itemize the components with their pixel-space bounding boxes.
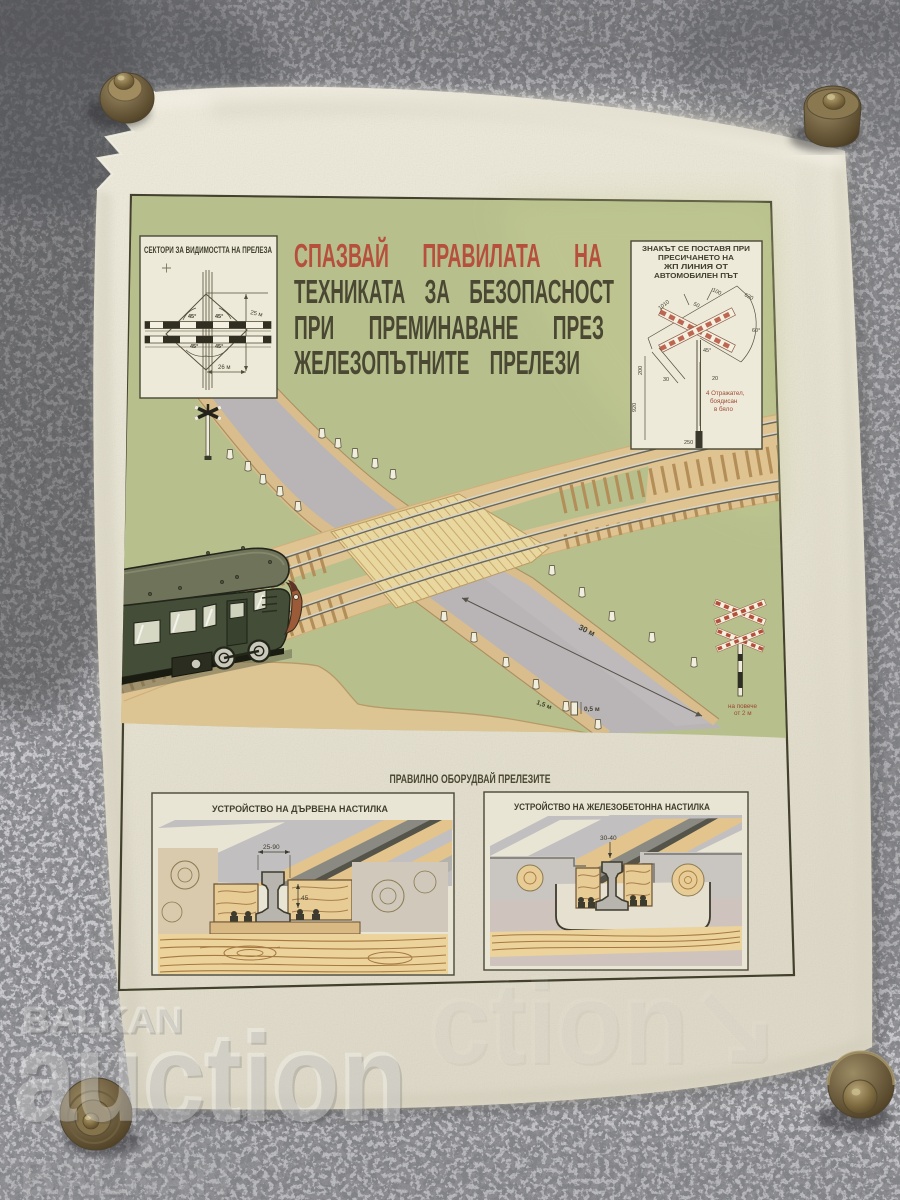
svg-text:auction: auction	[14, 1008, 406, 1147]
svg-text:ТЕХНИКАТА ЗА БЕЗОПАСНОСТ: ТЕХНИКАТА ЗА БЕЗОПАСНОСТ	[294, 273, 614, 310]
svg-text:200: 200	[638, 366, 644, 375]
svg-text:250: 250	[684, 440, 693, 446]
svg-text:45°: 45°	[215, 314, 223, 320]
svg-text:ction↘: ction↘	[428, 956, 778, 1088]
svg-text:BALKAN: BALKAN	[20, 1149, 230, 1200]
svg-text:ПРАВИЛНО ОБОРУДВАЙ ПРЕЛЕЗИТЕ: ПРАВИЛНО ОБОРУДВАЙ ПРЕЛЕЗИТЕ	[390, 771, 551, 786]
svg-text:4 Отражател,: 4 Отражател,	[706, 390, 745, 397]
svg-text:45°: 45°	[188, 314, 196, 320]
svg-text:СПАЗВАЙ ПРАВИЛАТА НА: СПАЗВАЙ ПРАВИЛАТА НА	[294, 236, 602, 274]
svg-text:АВТОМОБИЛЕН ПЪТ: АВТОМОБИЛЕН ПЪТ	[654, 271, 738, 280]
svg-text:45°: 45°	[215, 344, 223, 350]
svg-text:СЕКТОРИ ЗА ВИДИМОСТТА НА ПРЕЛЕ: СЕКТОРИ ЗА ВИДИМОСТТА НА ПРЕЛЕЗА	[144, 245, 272, 256]
svg-text:26 м: 26 м	[218, 365, 230, 371]
svg-text:УСТРОЙСТВО НА ДЪРВЕНА НАСТИЛКА: УСТРОЙСТВО НА ДЪРВЕНА НАСТИЛКА	[212, 803, 388, 814]
svg-text:30: 30	[663, 377, 669, 383]
svg-text:ЖП ЛИНИЯ ОТ: ЖП ЛИНИЯ ОТ	[663, 262, 729, 271]
svg-text:45: 45	[301, 895, 309, 902]
svg-text:на повече: на повече	[728, 703, 757, 710]
svg-text:30-40: 30-40	[600, 835, 617, 842]
svg-text:45°: 45°	[190, 344, 198, 350]
svg-text:ЖЕЛЕЗОПЪТНИТЕ ПРЕЛЕЗИ: ЖЕЛЕЗОПЪТНИТЕ ПРЕЛЕЗИ	[293, 344, 580, 381]
svg-text:УСТРОЙСТВО НА ЖЕЛЕЗОБЕТОННА НА: УСТРОЙСТВО НА ЖЕЛЕЗОБЕТОННА НАСТИЛКА	[514, 801, 710, 812]
svg-text:20: 20	[712, 376, 718, 382]
svg-text:ПРЕСИЧАНЕТО НА: ПРЕСИЧАНЕТО НА	[658, 253, 735, 262]
svg-text:920: 920	[632, 403, 638, 412]
svg-text:боядисан: боядисан	[710, 398, 737, 405]
svg-text:в бяло: в бяло	[714, 406, 733, 413]
svg-text:ПРИ ПРЕМИНАВАНЕ ПРЕЗ: ПРИ ПРЕМИНАВАНЕ ПРЕЗ	[294, 309, 604, 346]
svg-text:от 2 м: от 2 м	[734, 710, 752, 717]
svg-text:ЗНАКЪТ СЕ ПОСТАВЯ ПРИ: ЗНАКЪТ СЕ ПОСТАВЯ ПРИ	[642, 244, 750, 253]
svg-text:45°: 45°	[703, 348, 711, 354]
svg-text:25-90: 25-90	[263, 844, 280, 851]
svg-text:0,5 м: 0,5 м	[584, 706, 600, 713]
svg-text:60°: 60°	[752, 328, 760, 334]
